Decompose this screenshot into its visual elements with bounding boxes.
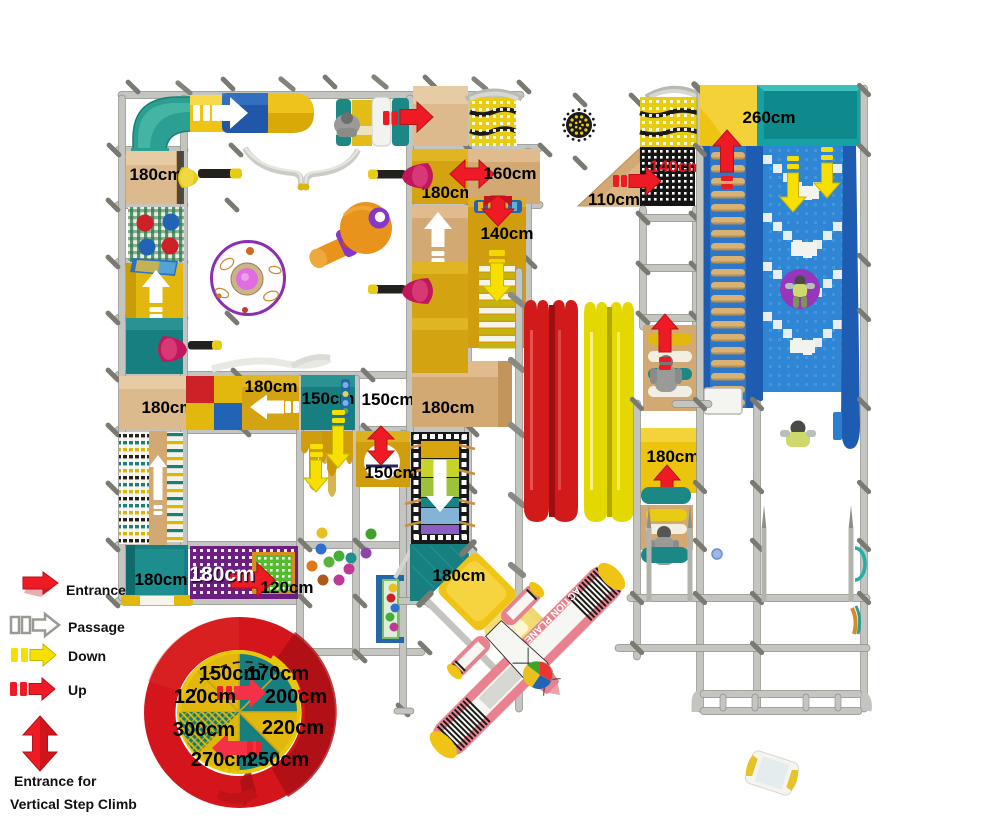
svg-text:Entrance: Entrance: [66, 582, 126, 598]
svg-text:150cm: 150cm: [365, 463, 418, 482]
svg-text:180cm: 180cm: [189, 563, 254, 586]
svg-text:270cm: 270cm: [191, 749, 253, 771]
svg-text:260cm: 260cm: [743, 108, 796, 127]
svg-text:Passage: Passage: [68, 619, 125, 635]
svg-text:180cm: 180cm: [647, 447, 700, 466]
svg-text:110cm: 110cm: [588, 190, 640, 209]
svg-text:300cm: 300cm: [173, 719, 235, 741]
svg-text:180cm: 180cm: [422, 398, 475, 417]
svg-text:150cm: 150cm: [362, 390, 415, 409]
svg-text:Vertical Step Climb: Vertical Step Climb: [10, 796, 137, 812]
svg-text:140cm: 140cm: [650, 157, 703, 176]
svg-text:Up: Up: [68, 682, 87, 698]
svg-text:200cm: 200cm: [265, 686, 327, 708]
svg-text:Down: Down: [68, 648, 106, 664]
svg-text:180cm: 180cm: [433, 566, 486, 585]
svg-text:160cm: 160cm: [484, 164, 537, 183]
svg-text:180cm: 180cm: [135, 570, 188, 589]
svg-text:250cm: 250cm: [247, 749, 309, 771]
svg-text:220cm: 220cm: [262, 717, 324, 739]
svg-text:120cm: 120cm: [174, 686, 236, 708]
svg-text:170cm: 170cm: [247, 663, 309, 685]
svg-text:180cm: 180cm: [130, 165, 183, 184]
svg-text:120cm: 120cm: [261, 578, 314, 597]
svg-text:180cm: 180cm: [245, 377, 298, 396]
svg-text:140cm: 140cm: [481, 224, 534, 243]
svg-text:Entrance for: Entrance for: [14, 773, 97, 789]
